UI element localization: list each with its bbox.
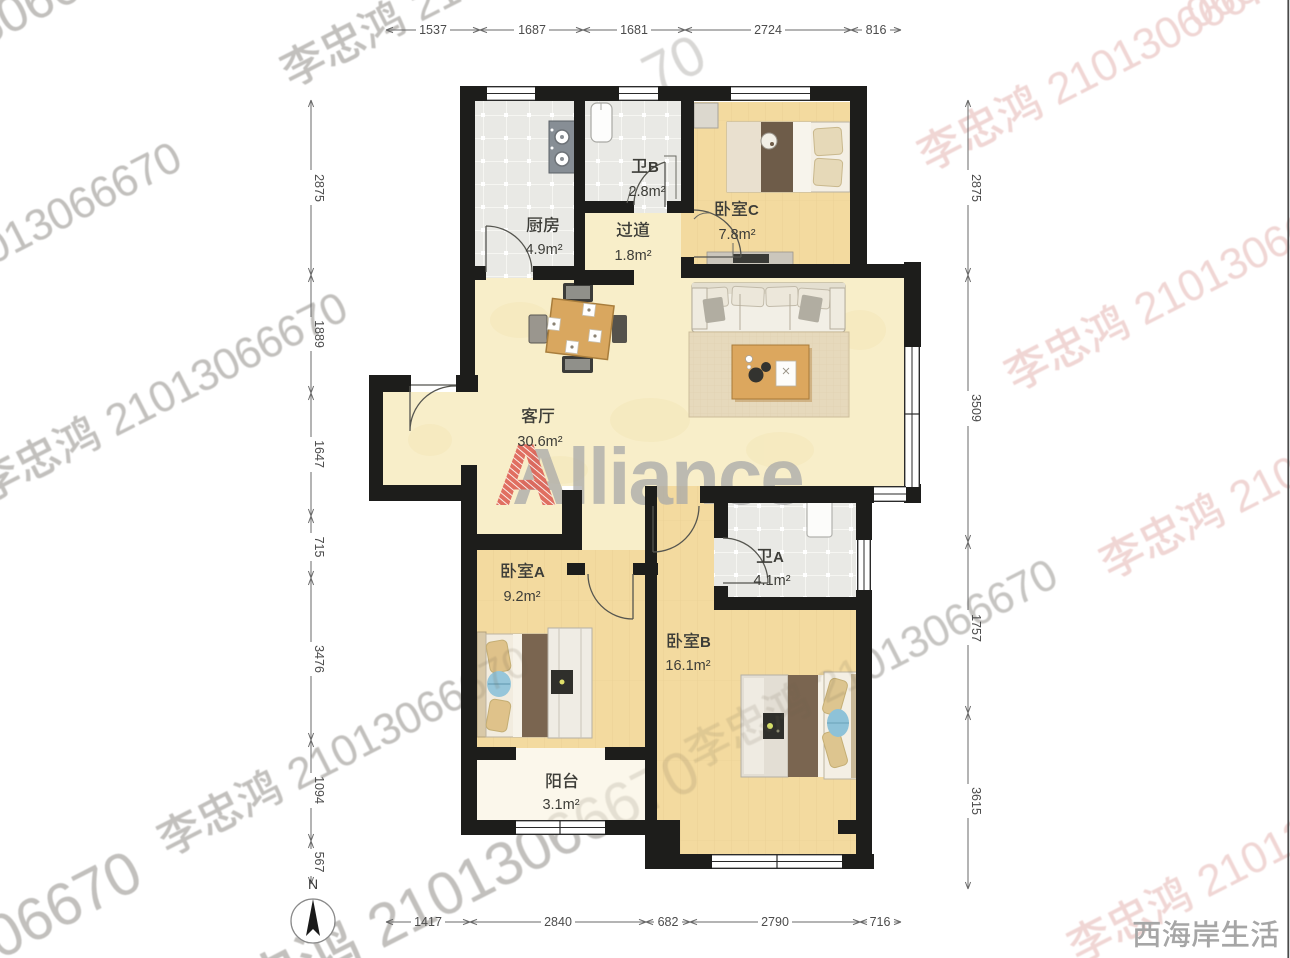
svg-text:4.9m²: 4.9m² (525, 242, 562, 258)
svg-text:1.8m²: 1.8m² (614, 248, 651, 264)
svg-text:4.1m²: 4.1m² (753, 573, 790, 589)
svg-text:7.8m²: 7.8m² (718, 227, 755, 243)
svg-text:3476: 3476 (312, 645, 326, 673)
svg-text:2875: 2875 (312, 174, 326, 202)
svg-text:1417: 1417 (414, 915, 442, 929)
svg-text:C: C (748, 202, 759, 219)
svg-text:816: 816 (866, 23, 887, 37)
svg-text:1647: 1647 (312, 440, 326, 468)
svg-text:B: B (700, 634, 711, 651)
svg-text:2790: 2790 (761, 915, 789, 929)
svg-text:9.2m²: 9.2m² (503, 589, 540, 605)
svg-text:3615: 3615 (969, 787, 983, 815)
svg-text:16.1m²: 16.1m² (665, 658, 710, 674)
svg-text:2840: 2840 (544, 915, 572, 929)
svg-text:567: 567 (312, 852, 326, 873)
svg-text:2.8m²: 2.8m² (628, 184, 665, 200)
svg-text:A: A (534, 564, 545, 581)
svg-text:N: N (308, 876, 318, 892)
svg-text:1687: 1687 (518, 23, 546, 37)
svg-text:1537: 1537 (419, 23, 447, 37)
svg-text:715: 715 (312, 537, 326, 558)
svg-text:2875: 2875 (969, 174, 983, 202)
svg-text:682: 682 (658, 915, 679, 929)
svg-text:2724: 2724 (754, 23, 782, 37)
svg-text:30.6m²: 30.6m² (517, 434, 562, 450)
svg-text:1889: 1889 (312, 320, 326, 348)
svg-text:716: 716 (870, 915, 891, 929)
svg-text:1681: 1681 (620, 23, 648, 37)
svg-text:3509: 3509 (969, 394, 983, 422)
svg-text:3.1m²: 3.1m² (542, 797, 579, 813)
svg-text:A: A (773, 549, 784, 566)
svg-text:B: B (648, 159, 659, 176)
svg-text:1757: 1757 (969, 614, 983, 642)
svg-text:1094: 1094 (312, 776, 326, 804)
